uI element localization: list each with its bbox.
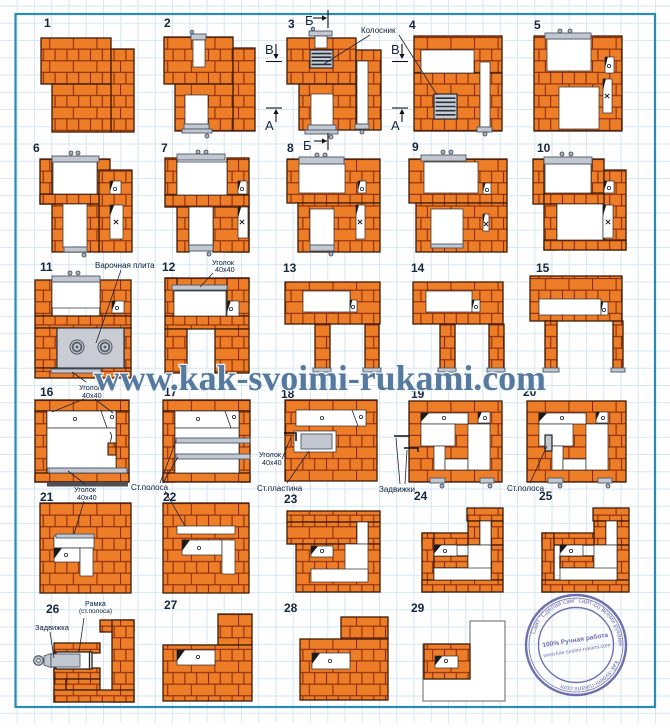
- svg-text:Задвижки: Задвижки: [379, 485, 415, 494]
- svg-text:40х40: 40х40: [262, 458, 282, 467]
- svg-text:26: 26: [46, 602, 60, 616]
- svg-text:5: 5: [534, 18, 541, 32]
- svg-text:40х40: 40х40: [77, 493, 97, 502]
- svg-text:12: 12: [162, 260, 176, 274]
- svg-text:В: В: [265, 42, 274, 57]
- svg-text:1: 1: [44, 16, 51, 30]
- svg-text:13: 13: [283, 261, 297, 275]
- svg-text:27: 27: [164, 598, 178, 612]
- svg-text:10: 10: [537, 141, 551, 155]
- svg-text:3: 3: [288, 17, 295, 31]
- svg-text:24: 24: [414, 489, 428, 503]
- svg-text:Ст.полоса: Ст.полоса: [507, 484, 545, 493]
- svg-text:Ст.пластина: Ст.пластина: [257, 484, 303, 493]
- svg-text:2: 2: [164, 16, 171, 30]
- svg-text:Ст.полоса: Ст.полоса: [131, 483, 169, 492]
- svg-text:16: 16: [40, 385, 54, 399]
- svg-text:Варочная плита: Варочная плита: [95, 261, 155, 270]
- svg-text:11: 11: [40, 260, 53, 274]
- svg-text:23: 23: [284, 492, 298, 506]
- svg-text:14: 14: [411, 261, 425, 275]
- svg-text:Колосник: Колосник: [361, 26, 396, 35]
- svg-text:28: 28: [284, 601, 298, 615]
- svg-text:Б: Б: [303, 138, 312, 153]
- svg-text:www.kak-svoimi-rukami.com: www.kak-svoimi-rukami.com: [94, 358, 546, 398]
- svg-text:15: 15: [536, 261, 550, 275]
- svg-text:4: 4: [409, 18, 416, 32]
- svg-text:В: В: [391, 42, 400, 57]
- svg-text:Рамка: Рамка: [85, 599, 106, 608]
- svg-text:9: 9: [412, 140, 419, 154]
- svg-text:(ст.полоса): (ст.полоса): [79, 608, 112, 615]
- svg-text:22: 22: [163, 490, 177, 504]
- svg-text:Задвижка: Задвижка: [35, 623, 70, 632]
- svg-text:А: А: [265, 118, 274, 133]
- svg-text:6: 6: [33, 141, 40, 155]
- svg-text:40х40: 40х40: [215, 265, 235, 274]
- svg-text:А: А: [391, 118, 400, 133]
- svg-text:29: 29: [411, 601, 425, 615]
- svg-text:8: 8: [287, 141, 294, 155]
- svg-text:21: 21: [40, 490, 54, 504]
- svg-text:Б: Б: [305, 13, 314, 28]
- svg-text:7: 7: [161, 141, 168, 155]
